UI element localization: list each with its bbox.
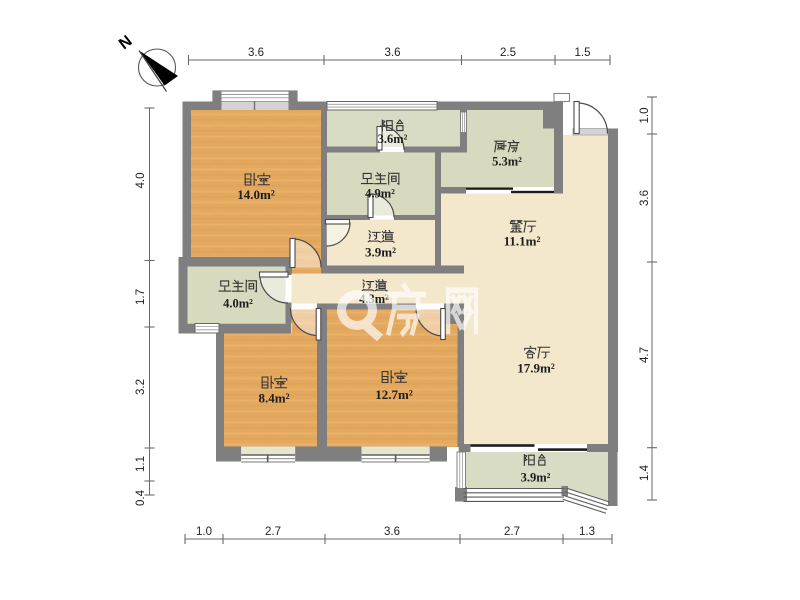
svg-text:4.7: 4.7 (639, 347, 651, 363)
svg-text:2.5: 2.5 (500, 47, 516, 59)
svg-text:3.6: 3.6 (639, 190, 651, 206)
svg-text:17.9m²: 17.9m² (517, 361, 555, 376)
svg-text:1.3: 1.3 (579, 526, 595, 538)
svg-text:3.9m²: 3.9m² (365, 245, 396, 260)
svg-text:11.1m²: 11.1m² (504, 234, 541, 249)
svg-text:14.0m²: 14.0m² (237, 187, 275, 202)
svg-text:3.6: 3.6 (385, 47, 401, 59)
svg-text:4.0m²: 4.0m² (223, 297, 253, 311)
svg-text:1.0: 1.0 (639, 108, 651, 124)
svg-text:1.7: 1.7 (135, 289, 147, 305)
svg-text:8.4m²: 8.4m² (259, 391, 290, 406)
svg-text:1.4: 1.4 (639, 464, 651, 481)
svg-text:4.9m²: 4.9m² (365, 187, 395, 201)
svg-text:3.6: 3.6 (384, 526, 400, 538)
svg-text:12.7m²: 12.7m² (375, 387, 413, 402)
svg-text:2.7: 2.7 (504, 526, 520, 538)
svg-text:2.7: 2.7 (265, 526, 281, 538)
svg-text:5.3m²: 5.3m² (492, 155, 522, 169)
svg-text:3.9m²: 3.9m² (521, 471, 551, 485)
svg-text:1.0: 1.0 (196, 526, 212, 538)
svg-text:0.4: 0.4 (135, 489, 147, 506)
svg-text:1.1: 1.1 (135, 456, 147, 472)
svg-text:4.0: 4.0 (135, 173, 147, 189)
svg-text:3.6: 3.6 (248, 47, 264, 59)
svg-text:3.2: 3.2 (135, 379, 147, 395)
svg-text:1.5: 1.5 (575, 47, 591, 59)
svg-text:3.6m²: 3.6m² (378, 132, 408, 146)
